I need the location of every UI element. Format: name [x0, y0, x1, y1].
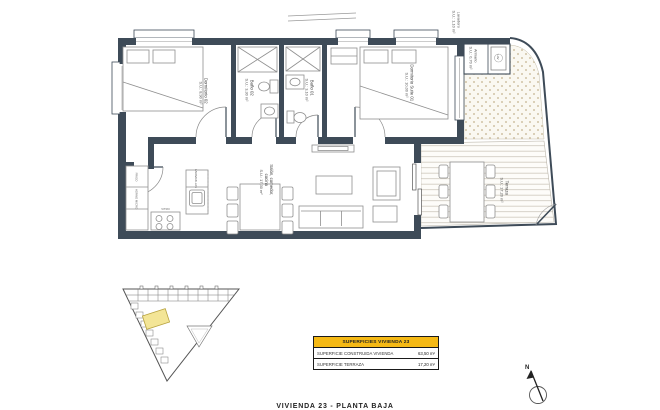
floorplan-page: Dormitorio 02 S.U.: 8,90 m² Baño 02 S.U.… — [0, 0, 660, 410]
bed-suite — [360, 47, 448, 119]
armchair — [373, 167, 400, 200]
summary-row-label: SUPERFICIE CONSTRUIDA VIVIENDA — [317, 351, 393, 356]
window-suite-top-2 — [394, 30, 438, 45]
door-dorm02 — [196, 107, 226, 137]
partition-bano01-suite — [322, 45, 327, 137]
partition-hall-3 — [276, 137, 296, 144]
shower-bano01 — [286, 47, 320, 71]
drawing-title: VIVIENDA 23 - PLANTA BAJA — [235, 403, 435, 410]
summary-row-value: 17,20 m² — [418, 362, 435, 367]
sofa — [299, 206, 363, 228]
terrace-table — [450, 162, 484, 222]
tv-cabinet — [312, 145, 354, 152]
summary-table-header: SUPERFICIES VIVIENDA 23 — [314, 337, 438, 348]
bed-dorm02 — [123, 47, 203, 111]
label-hob: VITRO — [161, 207, 170, 211]
partition-entry-jog — [148, 137, 154, 169]
summary-row-terrace: SUPERFICIE TERRAZA 17,20 m² — [314, 358, 438, 369]
sliding-door-terrace — [413, 163, 422, 215]
label-salon-comedor-cocina: Salón, comedor, cocina S.U.: 17,30 m² — [259, 164, 283, 200]
partition-hall-5 — [385, 137, 464, 144]
compass: N — [525, 365, 547, 404]
side-table — [373, 206, 397, 222]
label-lavadero: Lavadero S.U.: 1,10 m² — [451, 11, 470, 35]
partition-hall-1 — [152, 137, 196, 144]
site-outline — [123, 289, 239, 381]
partition-dorm02-bano02 — [231, 45, 236, 137]
compass-north-label: N — [525, 365, 529, 371]
partition-bano02-bano01 — [279, 45, 284, 137]
summary-row-constructed: SUPERFICIE CONSTRUIDA VIVIENDA 63,50 m² — [314, 348, 438, 358]
partition-hall-4 — [318, 137, 353, 144]
window-suite-right — [455, 56, 464, 120]
toilet-bano01 — [287, 111, 306, 123]
kitchen-hob — [151, 212, 180, 230]
label-bano-01: Baño 01 S.U.: 3,10 m² — [304, 79, 323, 103]
label-oven: HORNO MICRO — [135, 189, 139, 210]
wardrobe-suite — [331, 48, 357, 64]
label-dormitorio-02: Dormitorio 02 S.U.: 8,90 m² — [198, 78, 217, 108]
toilet-bano02 — [259, 80, 279, 93]
wall-bottom — [118, 231, 421, 239]
site-plan — [123, 286, 239, 381]
sink-bano02 — [261, 104, 278, 118]
summary-row-value: 63,50 m² — [418, 351, 435, 356]
sink-bano01 — [286, 75, 304, 89]
partition-hall-2 — [226, 137, 252, 144]
window-dorm02-top — [134, 30, 194, 45]
summary-row-label: SUPERFICIE TERRAZA — [317, 362, 364, 367]
label-dishwasher: LAVAVAJILLAS — [194, 169, 198, 188]
label-washer: LAV — [496, 54, 500, 59]
label-fridge: FRIGO — [135, 173, 139, 183]
area-summary-table: SUPERFICIES VIVIENDA 23 SUPERFICIE CONST… — [313, 336, 439, 370]
shower-bano02 — [238, 47, 277, 72]
coffee-table — [316, 176, 352, 194]
window-suite-top-1 — [336, 30, 370, 45]
